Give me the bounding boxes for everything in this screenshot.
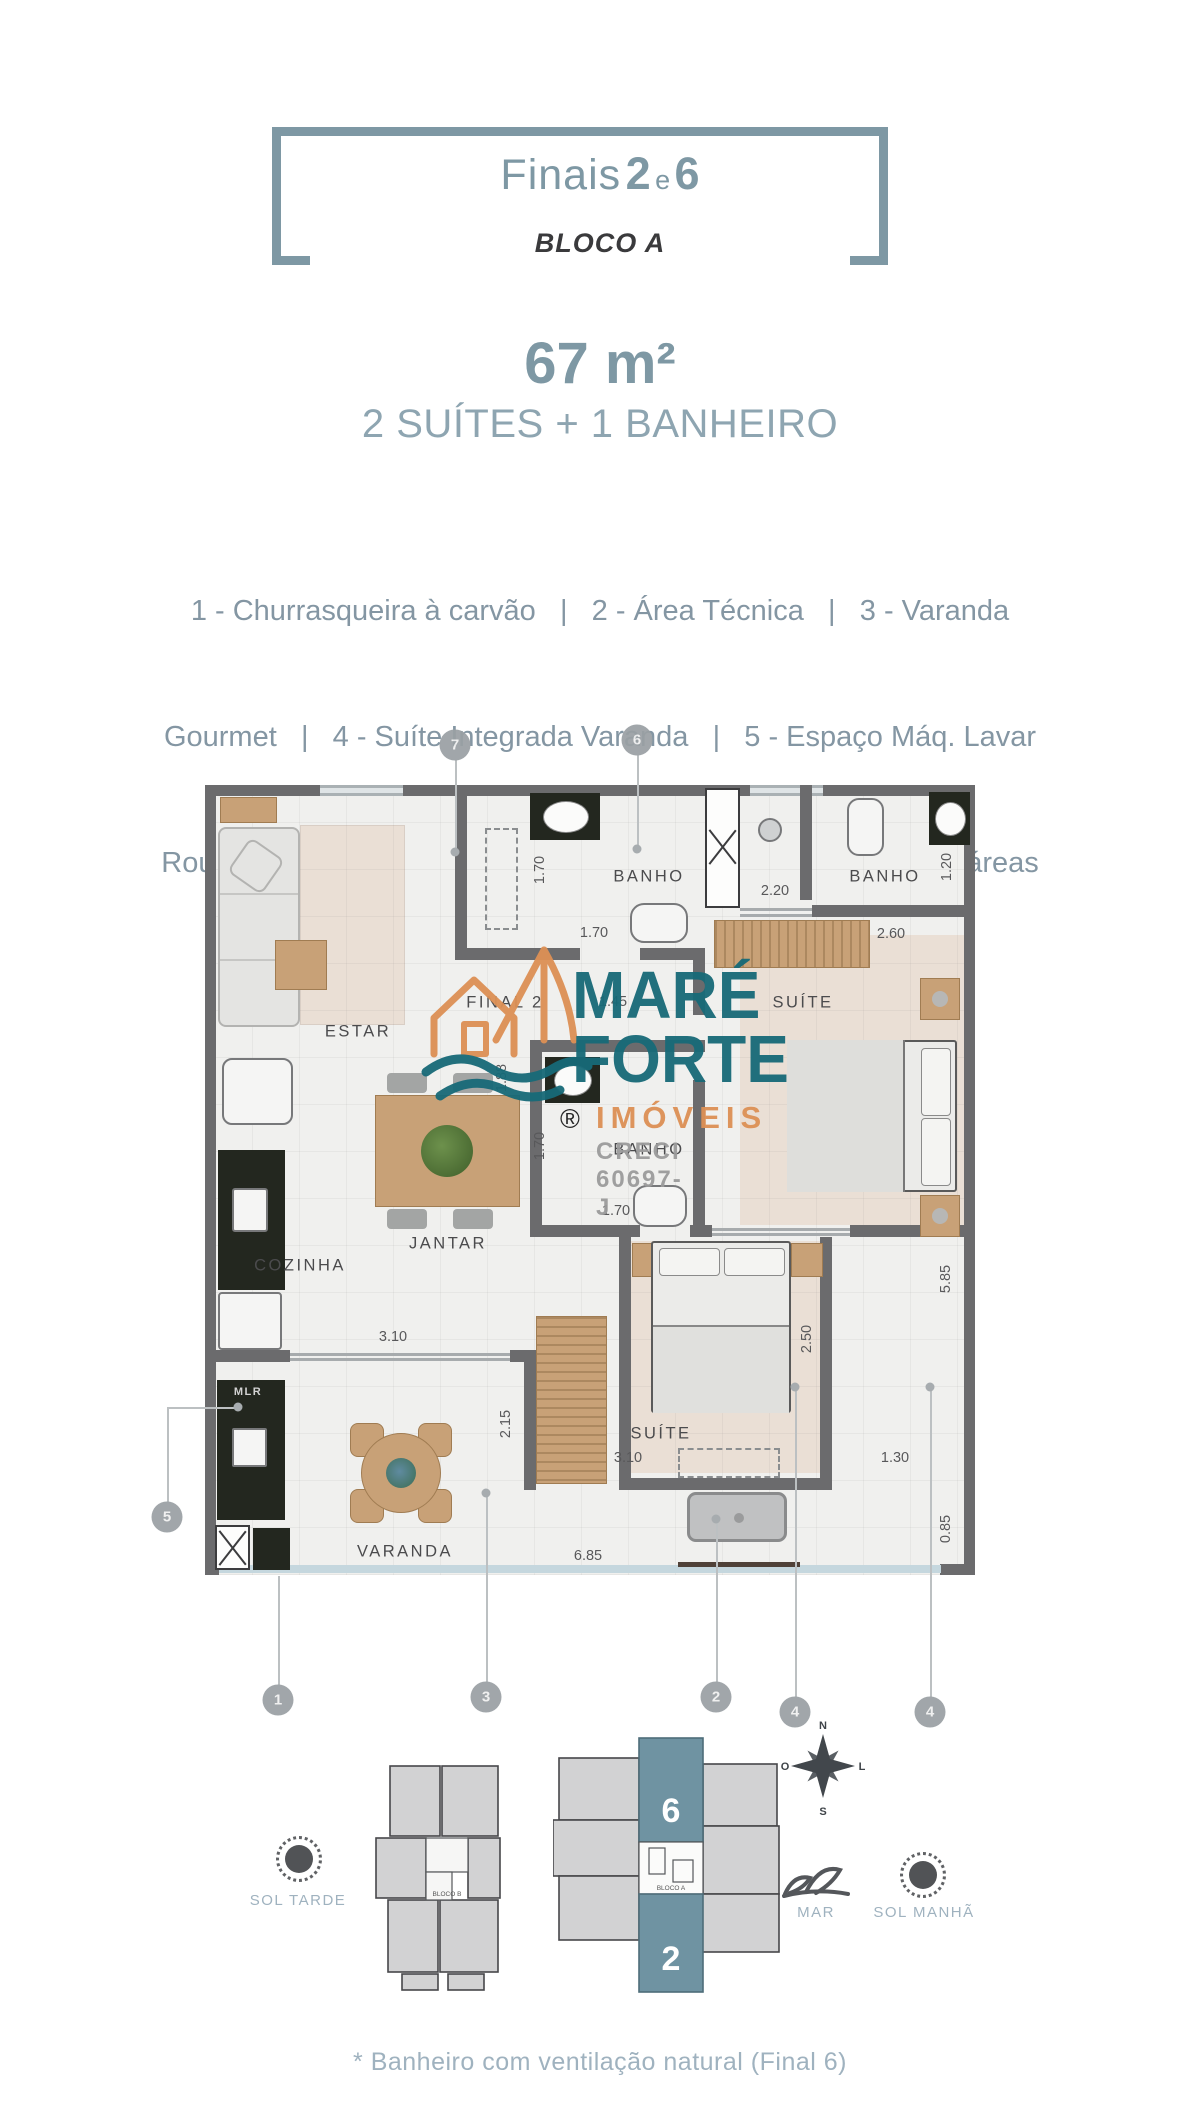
- balcony-glass-rail: [219, 1565, 941, 1573]
- balcony-handrail: [678, 1562, 800, 1567]
- shower-head: [758, 818, 782, 842]
- pillow: [724, 1248, 785, 1276]
- kitchen-sink: [232, 1188, 268, 1232]
- title-final-1: 2: [626, 148, 651, 199]
- dining-chair: [387, 1209, 427, 1229]
- toilet: [847, 798, 884, 856]
- stove: [218, 1292, 282, 1350]
- dining-chair: [453, 1209, 493, 1229]
- wall: [216, 1350, 290, 1362]
- wall: [524, 1350, 536, 1490]
- callout-number: 5: [152, 1502, 183, 1533]
- keyplan-bloco-a: 6 BLOCO A 2: [553, 1730, 783, 1995]
- varanda-plant: [386, 1458, 416, 1488]
- charcoal-grill: [253, 1528, 290, 1570]
- compass-s: S: [819, 1806, 826, 1818]
- washbasin: [935, 802, 966, 836]
- bloco-b-label: BLOCO B: [433, 1891, 462, 1898]
- logo-word-imoveis: IMÓVEIS: [596, 1100, 767, 1136]
- title-text: Finais: [500, 151, 621, 199]
- title-final-2: 6: [675, 148, 700, 199]
- floorplan: [205, 785, 975, 1575]
- logo-house-wave-icon: [418, 922, 596, 1130]
- sun-morning-icon: [900, 1852, 946, 1898]
- block-subtitle: BLOCO A: [0, 228, 1200, 259]
- sliding-door: [290, 1353, 510, 1356]
- callout-number: 2: [701, 1682, 732, 1713]
- window: [320, 785, 403, 796]
- title-conjunction: e: [655, 165, 670, 195]
- callout-number: 4: [915, 1697, 946, 1728]
- typology-line: 2 SUÍTES + 1 BANHEIRO: [0, 402, 1200, 447]
- ac-condenser: [687, 1492, 787, 1542]
- legend-line-1: 1 - Churrasqueira à carvão | 2 - Área Té…: [0, 590, 1200, 632]
- page-title: Finais 2 e 6: [0, 148, 1200, 200]
- wall: [530, 1225, 640, 1237]
- compass-l: L: [859, 1761, 866, 1773]
- ventilation-shaft: [705, 788, 740, 908]
- logo-word-mare: MARÉ: [572, 962, 760, 1029]
- pillow: [921, 1048, 951, 1116]
- bed-blanket: [653, 1325, 789, 1413]
- washing-machine: [232, 1428, 267, 1467]
- wall: [940, 1564, 975, 1575]
- nightstand: [920, 978, 960, 1020]
- footer-note: * Banheiro com ventilação natural (Final…: [0, 2048, 1200, 2077]
- bed-blanket: [787, 1040, 905, 1192]
- window-sill: [712, 1233, 850, 1236]
- window-sill: [740, 914, 812, 917]
- sun-afternoon-icon: [276, 1836, 322, 1882]
- wood-lounger: [536, 1316, 607, 1484]
- unit-2-number: 2: [662, 1940, 681, 1978]
- sol-tarde-label: SOL TARDE: [238, 1892, 358, 1909]
- compass-o: O: [781, 1761, 790, 1773]
- wall: [619, 1478, 832, 1490]
- keyplan-bloco-b: BLOCO B: [368, 1754, 523, 1994]
- wall: [812, 905, 975, 917]
- pillow: [921, 1118, 951, 1186]
- churrasqueira-bench: [215, 1525, 250, 1570]
- logo-creci-number: CRECI 60697-J: [596, 1138, 683, 1222]
- sol-manha-label: SOL MANHÃ: [854, 1904, 994, 1921]
- table-plant: [421, 1125, 473, 1177]
- callout-number: 1: [263, 1685, 294, 1716]
- callout-leader-line: [278, 1576, 280, 1685]
- wall: [964, 785, 975, 1575]
- sliding-door: [290, 1358, 510, 1361]
- window-sill: [740, 908, 812, 911]
- logo-word-forte: FORTE: [572, 1026, 789, 1093]
- mar-label: MAR: [776, 1904, 856, 1921]
- bloco-a-label: BLOCO A: [657, 1885, 686, 1892]
- window-sill: [712, 1228, 850, 1231]
- wall: [619, 1237, 631, 1489]
- pillow: [659, 1248, 720, 1276]
- tv-cabinet: [222, 1058, 293, 1125]
- wall: [205, 785, 216, 1575]
- dashed-projection: [485, 828, 518, 930]
- registered-mark: ®: [560, 1104, 580, 1135]
- legend-line-2: Gourmet | 4 - Suíte Integrada Varanda | …: [0, 716, 1200, 758]
- compass-rose-icon: N S O L: [778, 1718, 868, 1818]
- console-table: [220, 797, 277, 823]
- toilet: [630, 903, 688, 943]
- wall: [690, 1225, 712, 1237]
- area-value: 67 m²: [0, 330, 1200, 397]
- unit-6-number: 6: [662, 1792, 681, 1830]
- compass-n: N: [819, 1720, 827, 1732]
- sea-wave-icon: [780, 1858, 852, 1900]
- side-table: [275, 940, 327, 990]
- nightstand: [920, 1195, 960, 1237]
- nightstand: [791, 1243, 823, 1277]
- wall: [205, 785, 320, 796]
- wall: [800, 785, 812, 900]
- callout-leader-line: [167, 1407, 169, 1502]
- window: [750, 785, 823, 796]
- callout-number: 3: [471, 1682, 502, 1713]
- washbasin: [543, 801, 589, 833]
- dashed-projection: [678, 1448, 780, 1478]
- estar-rug: [300, 825, 405, 1025]
